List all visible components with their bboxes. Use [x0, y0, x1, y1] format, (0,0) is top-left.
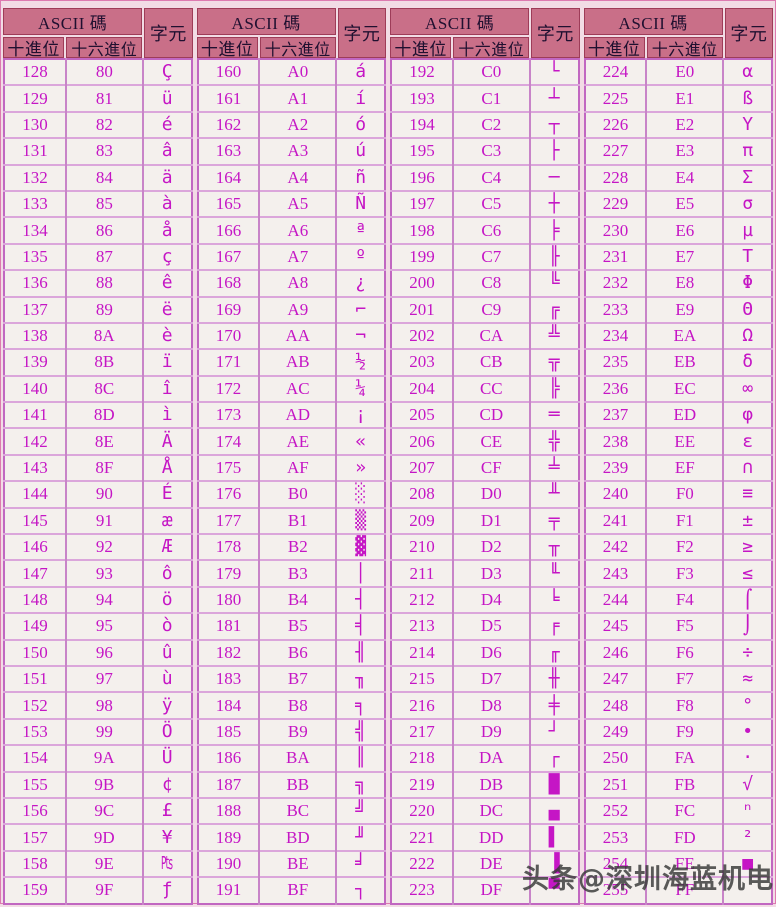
- char-cell: ÿ: [143, 692, 192, 718]
- table-row: 239EF∩: [585, 455, 773, 481]
- table-row: 212D4╘: [391, 587, 579, 613]
- char-cell: º: [336, 244, 385, 270]
- decimal-cell: 173: [198, 402, 260, 428]
- table-row: 186BA║: [198, 745, 386, 771]
- table-row: 202CA╩: [391, 323, 579, 349]
- char-cell: ╥: [530, 534, 579, 560]
- hex-cell: DB: [453, 772, 530, 798]
- hex-cell: BF: [259, 877, 336, 903]
- hex-cell: CE: [453, 428, 530, 454]
- hex-cell: EC: [646, 376, 723, 402]
- decimal-cell: 195: [391, 138, 453, 164]
- hex-cell: 8D: [66, 402, 143, 428]
- table-row: 247F7≈: [585, 666, 773, 692]
- table-row: 253FD²: [585, 824, 773, 850]
- header-ascii-code: ASCII 碼: [390, 8, 529, 35]
- table-header-2: ASCII 碼 字元 十進位 十六進位: [197, 8, 387, 58]
- decimal-cell: 175: [198, 455, 260, 481]
- hex-cell: E5: [646, 191, 723, 217]
- table-row: 1418Dì: [4, 402, 192, 428]
- hex-cell: 91: [66, 508, 143, 534]
- hex-cell: CA: [453, 323, 530, 349]
- decimal-cell: 192: [391, 59, 453, 85]
- decimal-cell: 253: [585, 824, 647, 850]
- decimal-cell: 165: [198, 191, 260, 217]
- decimal-cell: 185: [198, 719, 260, 745]
- decimal-cell: 193: [391, 85, 453, 111]
- char-cell: Ç: [143, 59, 192, 85]
- decimal-cell: 239: [585, 455, 647, 481]
- decimal-cell: 250: [585, 745, 647, 771]
- decimal-cell: 211: [391, 560, 453, 586]
- hex-cell: E2: [646, 112, 723, 138]
- hex-cell: D3: [453, 560, 530, 586]
- char-cell: ╧: [530, 455, 579, 481]
- hex-cell: 9B: [66, 772, 143, 798]
- table-row: 232E8Φ: [585, 270, 773, 296]
- hex-cell: 81: [66, 85, 143, 111]
- decimal-cell: 254: [585, 851, 647, 877]
- decimal-cell: 160: [198, 59, 260, 85]
- table-row: 220DC▄: [391, 798, 579, 824]
- hex-cell: 9E: [66, 851, 143, 877]
- char-cell: ¿: [336, 270, 385, 296]
- char-cell: ╬: [530, 428, 579, 454]
- char-cell: ╫: [530, 666, 579, 692]
- header-hexadecimal: 十六進位: [66, 37, 142, 58]
- decimal-cell: 137: [4, 297, 66, 323]
- table-row: 205CD═: [391, 402, 579, 428]
- table-row: 242F2≥: [585, 534, 773, 560]
- decimal-cell: 203: [391, 349, 453, 375]
- hex-cell: B0: [259, 481, 336, 507]
- ascii-table-groups: ASCII 碼 字元 十進位 十六進位 12880Ç12981ü13082é13…: [0, 0, 776, 907]
- table-row: 13082é: [4, 112, 192, 138]
- hex-cell: 86: [66, 217, 143, 243]
- header-decimal: 十進位: [584, 37, 645, 58]
- hex-cell: E3: [646, 138, 723, 164]
- hex-cell: 99: [66, 719, 143, 745]
- decimal-cell: 170: [198, 323, 260, 349]
- char-cell: ù: [143, 666, 192, 692]
- decimal-cell: 172: [198, 376, 260, 402]
- table-row: 230E6µ: [585, 217, 773, 243]
- char-cell: Ä: [143, 428, 192, 454]
- char-cell: ┬: [530, 112, 579, 138]
- char-cell: £: [143, 798, 192, 824]
- char-cell: Ω: [723, 323, 772, 349]
- table-row: 238EEε: [585, 428, 773, 454]
- char-cell: ¼: [336, 376, 385, 402]
- table-row: 229E5σ: [585, 191, 773, 217]
- char-cell: à: [143, 191, 192, 217]
- char-cell: á: [336, 59, 385, 85]
- hex-cell: 87: [66, 244, 143, 270]
- hex-cell: A9: [259, 297, 336, 323]
- table-row: 252FCⁿ: [585, 798, 773, 824]
- hex-cell: BA: [259, 745, 336, 771]
- hex-cell: A4: [259, 165, 336, 191]
- char-cell: ╟: [530, 244, 579, 270]
- decimal-cell: 223: [391, 877, 453, 903]
- table-row: 14692Æ: [4, 534, 192, 560]
- char-cell: ε: [723, 428, 772, 454]
- hex-cell: C9: [453, 297, 530, 323]
- table-row: 15399Ö: [4, 719, 192, 745]
- decimal-cell: 201: [391, 297, 453, 323]
- hex-cell: D0: [453, 481, 530, 507]
- table-row: 180B4┤: [198, 587, 386, 613]
- decimal-cell: 222: [391, 851, 453, 877]
- char-cell: «: [336, 428, 385, 454]
- char-cell: ü: [143, 85, 192, 111]
- table-row: 209D1╤: [391, 508, 579, 534]
- hex-cell: B6: [259, 640, 336, 666]
- table-row: 179B3│: [198, 560, 386, 586]
- char-cell: µ: [723, 217, 772, 243]
- table-row: 1579D¥: [4, 824, 192, 850]
- hex-cell: DD: [453, 824, 530, 850]
- char-cell: Æ: [143, 534, 192, 560]
- table-row: 225E1ß: [585, 85, 773, 111]
- hex-cell: 95: [66, 613, 143, 639]
- table-row: 163A3ú: [198, 138, 386, 164]
- hex-cell: D1: [453, 508, 530, 534]
- hex-cell: F9: [646, 719, 723, 745]
- decimal-cell: 154: [4, 745, 66, 771]
- char-cell: â: [143, 138, 192, 164]
- hex-cell: CF: [453, 455, 530, 481]
- char-cell: └: [530, 59, 579, 85]
- char-cell: ·: [723, 745, 772, 771]
- hex-cell: AB: [259, 349, 336, 375]
- hex-cell: E4: [646, 165, 723, 191]
- char-cell: ▄: [530, 798, 579, 824]
- hex-cell: B5: [259, 613, 336, 639]
- table-row: 201C9╔: [391, 297, 579, 323]
- char-cell: í: [336, 85, 385, 111]
- hex-cell: 88: [66, 270, 143, 296]
- table-row: 178B2▓: [198, 534, 386, 560]
- hex-cell: B1: [259, 508, 336, 534]
- decimal-cell: 198: [391, 217, 453, 243]
- hex-cell: AF: [259, 455, 336, 481]
- decimal-cell: 149: [4, 613, 66, 639]
- table-row: 171AB½: [198, 349, 386, 375]
- decimal-cell: 186: [198, 745, 260, 771]
- hex-cell: FC: [646, 798, 723, 824]
- char-cell: ▓: [336, 534, 385, 560]
- hex-cell: 90: [66, 481, 143, 507]
- table-row: 221DD▌: [391, 824, 579, 850]
- hex-cell: A3: [259, 138, 336, 164]
- hex-cell: ED: [646, 402, 723, 428]
- table-row: 13183â: [4, 138, 192, 164]
- char-cell: │: [336, 560, 385, 586]
- char-cell: ╞: [530, 217, 579, 243]
- table-row: 214D6╓: [391, 640, 579, 666]
- decimal-cell: 206: [391, 428, 453, 454]
- char-cell: ¬: [336, 323, 385, 349]
- decimal-cell: 217: [391, 719, 453, 745]
- char-cell: ╦: [530, 349, 579, 375]
- char-cell: ■: [723, 851, 772, 877]
- decimal-cell: 209: [391, 508, 453, 534]
- char-cell: ╜: [336, 824, 385, 850]
- hex-cell: DC: [453, 798, 530, 824]
- char-cell: ƒ: [143, 877, 192, 903]
- table-row: 189BD╜: [198, 824, 386, 850]
- char-cell: ╔: [530, 297, 579, 323]
- table-row: 177B1▒: [198, 508, 386, 534]
- hex-cell: 83: [66, 138, 143, 164]
- table-row: 243F3≤: [585, 560, 773, 586]
- table-row: 211D3╙: [391, 560, 579, 586]
- char-cell: °: [723, 692, 772, 718]
- decimal-cell: 234: [585, 323, 647, 349]
- ascii-table-2: 160A0á161A1í162A2ó163A3ú164A4ñ165A5Ñ166A…: [197, 58, 387, 905]
- char-cell: ó: [336, 112, 385, 138]
- char-cell: ²: [723, 824, 772, 850]
- char-cell: ≈: [723, 666, 772, 692]
- table-row: 13587ç: [4, 244, 192, 270]
- hex-cell: B7: [259, 666, 336, 692]
- hex-cell: 98: [66, 692, 143, 718]
- decimal-cell: 152: [4, 692, 66, 718]
- table-row: 193C1┴: [391, 85, 579, 111]
- table-row: 15298ÿ: [4, 692, 192, 718]
- hex-cell: 93: [66, 560, 143, 586]
- decimal-cell: 212: [391, 587, 453, 613]
- table-row: 182B6╢: [198, 640, 386, 666]
- table-row: 200C8╚: [391, 270, 579, 296]
- decimal-cell: 128: [4, 59, 66, 85]
- decimal-cell: 164: [198, 165, 260, 191]
- hex-cell: 85: [66, 191, 143, 217]
- char-cell: ì: [143, 402, 192, 428]
- char-cell: æ: [143, 508, 192, 534]
- decimal-cell: 242: [585, 534, 647, 560]
- decimal-cell: 216: [391, 692, 453, 718]
- header-char: 字元: [338, 8, 386, 58]
- decimal-cell: 194: [391, 112, 453, 138]
- hex-cell: D4: [453, 587, 530, 613]
- table-row: 175AF»: [198, 455, 386, 481]
- hex-cell: D6: [453, 640, 530, 666]
- hex-cell: D8: [453, 692, 530, 718]
- hex-cell: DF: [453, 877, 530, 903]
- decimal-cell: 169: [198, 297, 260, 323]
- decimal-cell: 155: [4, 772, 66, 798]
- hex-cell: F3: [646, 560, 723, 586]
- char-cell: ⌐: [336, 297, 385, 323]
- char-cell: α: [723, 59, 772, 85]
- hex-cell: A5: [259, 191, 336, 217]
- char-cell: Φ: [723, 270, 772, 296]
- table-row: 224E0α: [585, 59, 773, 85]
- table-row: 198C6╞: [391, 217, 579, 243]
- table-row: 13385à: [4, 191, 192, 217]
- table-row: 240F0≡: [585, 481, 773, 507]
- hex-cell: C1: [453, 85, 530, 111]
- char-cell: è: [143, 323, 192, 349]
- table-row: 1599Fƒ: [4, 877, 192, 903]
- table-row: 162A2ó: [198, 112, 386, 138]
- decimal-cell: 158: [4, 851, 66, 877]
- hex-cell: 9C: [66, 798, 143, 824]
- header-char: 字元: [725, 8, 773, 58]
- table-header-4: ASCII 碼 字元 十進位 十六進位: [584, 8, 774, 58]
- decimal-cell: 139: [4, 349, 66, 375]
- decimal-cell: 225: [585, 85, 647, 111]
- table-row: 246F6÷: [585, 640, 773, 666]
- table-row: 215D7╫: [391, 666, 579, 692]
- decimal-cell: 191: [198, 877, 260, 903]
- header-decimal: 十進位: [3, 37, 64, 58]
- char-cell: ▀: [530, 877, 579, 903]
- decimal-cell: 224: [585, 59, 647, 85]
- decimal-cell: 247: [585, 666, 647, 692]
- decimal-cell: 231: [585, 244, 647, 270]
- header-char: 字元: [144, 8, 192, 58]
- table-row: 235EBδ: [585, 349, 773, 375]
- decimal-cell: 229: [585, 191, 647, 217]
- table-row: 1589E₧: [4, 851, 192, 877]
- table-row: 13284ä: [4, 165, 192, 191]
- table-row: 166A6ª: [198, 217, 386, 243]
- char-cell: ╤: [530, 508, 579, 534]
- table-row: 196C4─: [391, 165, 579, 191]
- hex-cell: D7: [453, 666, 530, 692]
- hex-cell: A0: [259, 59, 336, 85]
- char-cell: ñ: [336, 165, 385, 191]
- hex-cell: BE: [259, 851, 336, 877]
- table-row: 170AA¬: [198, 323, 386, 349]
- hex-cell: B3: [259, 560, 336, 586]
- hex-cell: C3: [453, 138, 530, 164]
- table-row: 187BB╗: [198, 772, 386, 798]
- table-row: 168A8¿: [198, 270, 386, 296]
- char-cell: [723, 877, 772, 903]
- char-cell: ═: [530, 402, 579, 428]
- hex-cell: DA: [453, 745, 530, 771]
- decimal-cell: 238: [585, 428, 647, 454]
- hex-cell: 96: [66, 640, 143, 666]
- table-row: 226E2Υ: [585, 112, 773, 138]
- char-cell: ß: [723, 85, 772, 111]
- hex-cell: CC: [453, 376, 530, 402]
- decimal-cell: 131: [4, 138, 66, 164]
- char-cell: Ü: [143, 745, 192, 771]
- hex-cell: 97: [66, 666, 143, 692]
- table-row: 245F5⌡: [585, 613, 773, 639]
- hex-cell: DE: [453, 851, 530, 877]
- char-cell: ╒: [530, 613, 579, 639]
- hex-cell: F4: [646, 587, 723, 613]
- decimal-cell: 167: [198, 244, 260, 270]
- char-cell: ░: [336, 481, 385, 507]
- decimal-cell: 163: [198, 138, 260, 164]
- table-row: 14490É: [4, 481, 192, 507]
- hex-cell: A2: [259, 112, 336, 138]
- table-row: 161A1í: [198, 85, 386, 111]
- table-row: 14995ò: [4, 613, 192, 639]
- table-row: 14894ö: [4, 587, 192, 613]
- hex-cell: 8A: [66, 323, 143, 349]
- decimal-cell: 205: [391, 402, 453, 428]
- char-cell: δ: [723, 349, 772, 375]
- char-cell: ⁿ: [723, 798, 772, 824]
- hex-cell: E8: [646, 270, 723, 296]
- char-cell: Θ: [723, 297, 772, 323]
- decimal-cell: 145: [4, 508, 66, 534]
- table-row: 14793ô: [4, 560, 192, 586]
- char-cell: ┌: [530, 745, 579, 771]
- char-cell: ╘: [530, 587, 579, 613]
- table-row: 236EC∞: [585, 376, 773, 402]
- table-row: 1428EÄ: [4, 428, 192, 454]
- decimal-cell: 221: [391, 824, 453, 850]
- header-hexadecimal: 十六進位: [647, 37, 723, 58]
- decimal-cell: 134: [4, 217, 66, 243]
- table-row: 192C0└: [391, 59, 579, 85]
- header-ascii-code: ASCII 碼: [584, 8, 723, 35]
- char-cell: é: [143, 112, 192, 138]
- hex-cell: FA: [646, 745, 723, 771]
- char-cell: ╪: [530, 692, 579, 718]
- char-cell: •: [723, 719, 772, 745]
- header-decimal: 十進位: [390, 37, 451, 58]
- decimal-cell: 136: [4, 270, 66, 296]
- decimal-cell: 215: [391, 666, 453, 692]
- hex-cell: 80: [66, 59, 143, 85]
- char-cell: ç: [143, 244, 192, 270]
- decimal-cell: 177: [198, 508, 260, 534]
- decimal-cell: 240: [585, 481, 647, 507]
- decimal-cell: 244: [585, 587, 647, 613]
- table-row: 213D5╒: [391, 613, 579, 639]
- hex-cell: EB: [646, 349, 723, 375]
- hex-cell: B2: [259, 534, 336, 560]
- char-cell: ±: [723, 508, 772, 534]
- decimal-cell: 147: [4, 560, 66, 586]
- ascii-table-4: 224E0α225E1ß226E2Υ227E3π228E4Σ229E5σ230E…: [584, 58, 774, 905]
- char-cell: ╚: [530, 270, 579, 296]
- table-row: 184B8╕: [198, 692, 386, 718]
- decimal-cell: 213: [391, 613, 453, 639]
- char-cell: ╨: [530, 481, 579, 507]
- table-row: 199C7╟: [391, 244, 579, 270]
- table-row: 191BF┐: [198, 877, 386, 903]
- char-cell: ⌠: [723, 587, 772, 613]
- table-row: 234EAΩ: [585, 323, 773, 349]
- char-cell: ⌡: [723, 613, 772, 639]
- table-row: 203CB╦: [391, 349, 579, 375]
- hex-cell: 8B: [66, 349, 143, 375]
- hex-cell: 82: [66, 112, 143, 138]
- hex-cell: FD: [646, 824, 723, 850]
- char-cell: Τ: [723, 244, 772, 270]
- table-row: 254FE■: [585, 851, 773, 877]
- decimal-cell: 144: [4, 481, 66, 507]
- char-cell: ≡: [723, 481, 772, 507]
- decimal-cell: 248: [585, 692, 647, 718]
- decimal-cell: 208: [391, 481, 453, 507]
- decimal-cell: 135: [4, 244, 66, 270]
- table-row: 172AC¼: [198, 376, 386, 402]
- decimal-cell: 207: [391, 455, 453, 481]
- char-cell: ╕: [336, 692, 385, 718]
